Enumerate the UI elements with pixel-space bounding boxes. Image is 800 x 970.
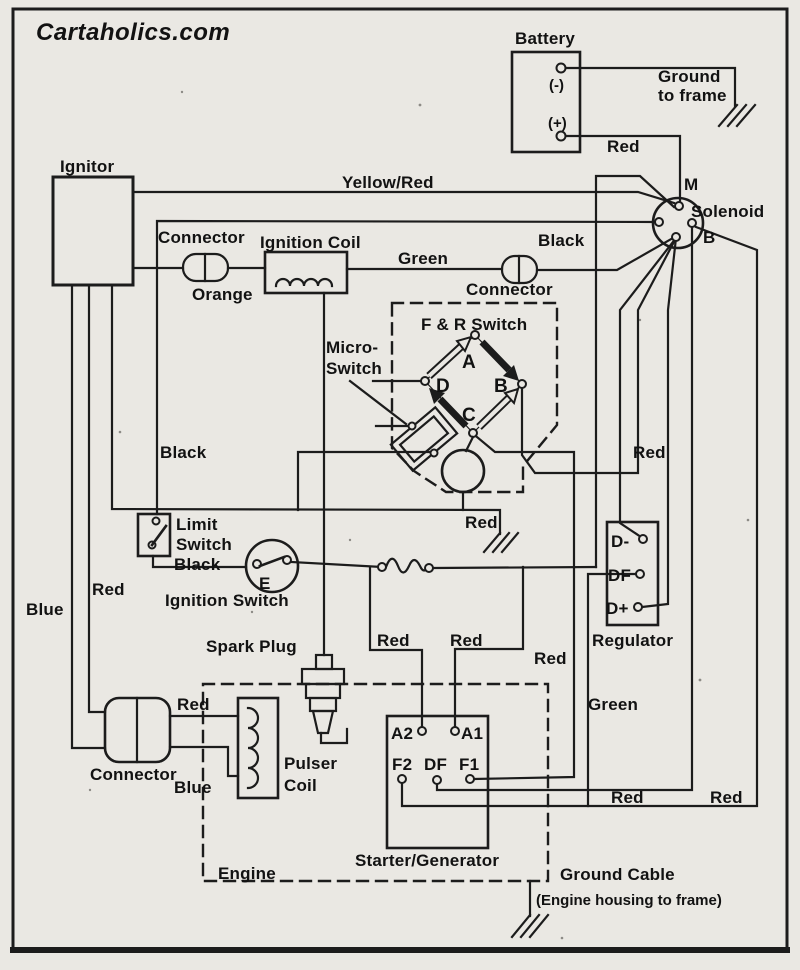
wire-label-green: Green [398,249,448,268]
label-solenoid-b: B [703,228,715,247]
wire-label-black-ignitor: Black [160,443,207,462]
wire-solenoid-m-red [596,176,674,567]
label-micro-switch-1: Micro- [326,338,378,357]
label-reg-dplus: D+ [606,599,629,618]
label-sg-df: DF [424,755,447,774]
label-battery-negative: (-) [549,77,564,94]
ground-symbol-fr [484,533,518,552]
ignition-switch [246,540,433,592]
wire-label-red-a1-corner: Red [534,649,567,668]
label-ignition-switch: Ignition Switch [165,591,289,610]
pulser-coil-body [238,698,278,798]
connector-bottom-body [105,698,170,762]
connector-mid-capsule [502,256,537,283]
label-engine: Engine [218,864,276,883]
wire-fuse-to-bus [433,567,596,568]
wire-label-red-ignitor: Red [92,580,125,599]
page-border [13,9,787,950]
label-fr-b: B [494,376,508,397]
label-battery-positive: (+) [548,115,567,132]
wire-solenoid-b-df [437,227,692,790]
micro-switch-pointer [350,381,406,424]
label-ignition-coil: Ignition Coil [260,233,361,252]
site-logo: Cartaholics.com [36,19,230,46]
label-limit-switch-2: Switch [176,535,232,554]
label-sg-a2: A2 [391,724,413,743]
label-fr-a: A [462,352,476,373]
label-ground-to-frame-2: to frame [658,86,727,105]
ignitor-box [53,177,133,285]
wire-label-red-fr-ground: Red [465,513,498,532]
micro-switch-body [391,407,457,470]
label-starter-generator: Starter/Generator [355,851,499,870]
wire-label-yellow-red: Yellow/Red [342,173,434,192]
spark-plug-body [302,655,347,743]
label-regulator: Regulator [592,631,673,650]
wire-label-orange: Orange [192,285,253,304]
label-pulser-coil-1: Pulser [284,754,337,773]
label-sg-f2: F2 [392,755,412,774]
wire-label-blue-ignitor: Blue [26,600,64,619]
wire-label-green-field: Green [588,695,638,714]
label-connector-mid: Connector [466,280,553,299]
label-solenoid: Solenoid [691,202,764,221]
label-sg-f1: F1 [459,755,479,774]
label-sg-a1: A1 [461,724,483,743]
label-limit-switch-1: Limit [176,515,218,534]
wire-label-red-f2-run-right: Red [710,788,743,807]
label-ground-to-frame-1: Ground [658,67,721,86]
label-reg-df: DF [608,566,631,585]
wire-label-red-regulator: Red [633,443,666,462]
connector-top-capsule [183,254,228,281]
label-micro-switch-2: Switch [326,359,382,378]
wire-label-red-a1: Red [450,631,483,650]
wire-label-red-f2-run: Red [611,788,644,807]
label-pulser-coil-2: Coil [284,776,317,795]
label-ground-cable: Ground Cable [560,865,675,884]
wiring-diagram: Cartaholics.com Battery (-) (+) Ground t… [0,0,800,970]
wire-label-red-connector: Red [177,695,210,714]
label-fr-c: C [462,405,476,426]
ground-symbol-engine [512,915,548,937]
wire-ignition-to-fuse [291,562,382,567]
label-fr-d: D [436,376,450,397]
scanned-wiring-diagram-page: Cartaholics.com Battery (-) (+) Ground t… [0,0,800,970]
label-fr-switch: F & R Switch [421,315,527,334]
label-ignition-e: E [259,574,271,593]
limit-switch [138,514,170,556]
ground-symbol-battery [719,105,755,126]
wire-label-blue-connector: Blue [174,778,212,797]
wire-label-red-battery: Red [607,137,640,156]
wire-label-black-solenoid: Black [538,231,585,250]
wire-yellow-red [133,192,674,203]
label-solenoid-m: M [684,175,698,194]
label-ignitor: Ignitor [60,157,114,176]
label-spark-plug: Spark Plug [206,637,297,656]
label-connector-bottom: Connector [90,765,177,784]
wire-fuse-element [386,559,429,573]
label-connector-top: Connector [158,228,245,247]
label-ground-cable-sub: (Engine housing to frame) [536,892,722,909]
wire-red-ignitor [89,285,105,712]
label-battery: Battery [515,29,575,48]
label-reg-dminus: D- [611,532,629,551]
ignition-coil-box [265,252,347,293]
wire-label-black-limit: Black [174,555,221,574]
wire-label-red-a2: Red [377,631,410,650]
